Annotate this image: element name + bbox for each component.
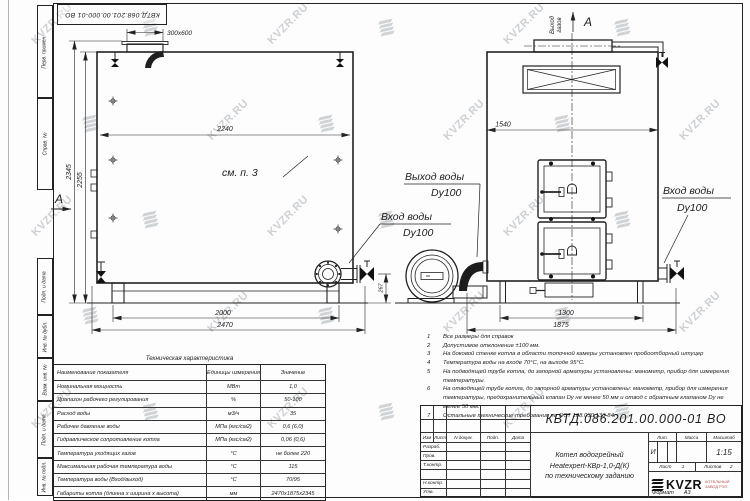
anchor-symbols	[109, 97, 343, 234]
tech-table-body: Номинальная мощность МВт 1,0 Диапазон ра…	[54, 380, 325, 500]
stamp-podp-data-2: Подп. и дата	[37, 401, 53, 458]
fan-outlet-elbow	[459, 262, 483, 291]
water-inlet-left-label: Вход воды	[381, 211, 432, 223]
side-width-dim: 2240	[216, 126, 233, 133]
note-item: 5 На подводящей трубе котла, до запорной…	[427, 368, 739, 385]
tech-table-row: Расход воды м3/ч 35	[54, 407, 325, 420]
side-height-dim: 2345	[66, 164, 73, 181]
tech-table-header: Наименование показателя Единицы измерени…	[54, 365, 325, 380]
furnace-door-lower	[538, 222, 612, 280]
water-inlet-right-label: Вход воды	[663, 185, 714, 197]
top-doc-number-box: КВТД.068.201.00.000-01 ВО	[57, 4, 167, 25]
lit-cells: И	[649, 442, 677, 463]
view-a-label: А	[583, 15, 592, 29]
inlet-valve	[341, 261, 374, 283]
signature-row	[421, 470, 531, 479]
note-item: 4 Температура воды на входе 70°С, на вых…	[427, 359, 739, 368]
signature-row: Утв.	[421, 489, 531, 498]
tech-table-row: Температура воды (Вход/выход) °С 70/95	[54, 473, 325, 486]
boiler-front-view	[487, 12, 684, 303]
title-block: КВТД.086.201.00.000-01 ВО Изм Лист N док…	[420, 405, 742, 497]
pipe-height-dim: 267	[379, 282, 385, 293]
stamp-podp-data-1: Подп. и дата	[37, 258, 53, 315]
signature-row: Пров.	[421, 452, 531, 461]
tech-table-row: Максимальная рабочая температура воды °С…	[54, 460, 325, 473]
water-inlet-flange	[315, 261, 341, 287]
tech-table-title: Техническая характеристика	[53, 355, 326, 364]
stamp-vzam-inv: Взам. инв. №	[37, 358, 53, 401]
change-table-empty	[421, 406, 531, 433]
tech-table-row: Гидравлическое сопротивление котла МПа (…	[54, 433, 325, 446]
gas-outlet-label-2: газов	[557, 17, 563, 32]
signature-row: Разраб.	[421, 443, 531, 452]
stamp-inv-podl: Инв. № подл.	[37, 458, 53, 496]
water-inlet-right-dn: Dy100	[677, 202, 708, 214]
lit-mass-scale-header: Лит. Масса Масштаб	[649, 433, 741, 442]
explosion-valve-elbow	[145, 51, 164, 68]
water-outlet-dn: Dy100	[431, 187, 462, 199]
document-number: КВТД.086.201.00.000-01 ВО	[531, 406, 741, 433]
signature-row: Т.контр.	[421, 461, 531, 470]
side-base-dim: 2000	[214, 310, 231, 317]
section-a-label: А	[54, 192, 63, 206]
tech-table-row: Температура уходящих газов °С не более 2…	[54, 446, 325, 459]
side-height-dim2: 2255	[77, 172, 84, 189]
wall-brackets	[91, 170, 97, 238]
tech-table-row: Габариты котла (длинна х ширина х высота…	[54, 486, 325, 499]
kvzr-logo-caption: КОТЕЛЬНЫЙ ЗАВОД РЭП	[705, 480, 738, 489]
roof-valve-right	[336, 52, 344, 67]
tech-table-row: Диапазон рабочего регулирования % 50-100	[54, 393, 325, 406]
signature-rows: Разраб. Пров. Т.контр.	[421, 443, 531, 498]
product-name: Котел водогрейный Heatexpert-КВр-1,0-Д(К…	[531, 433, 649, 498]
hatch-dim-label: 300x600	[167, 30, 192, 37]
water-inlet-left-dn: Dy100	[403, 227, 434, 239]
sheet-counter: Лист1 Листов2	[649, 463, 741, 472]
tech-table-row: Номинальная мощность МВт 1,0	[54, 380, 325, 393]
tech-table-row: Рабочее давление воды МПа (кгс/см2) 0,6 …	[54, 420, 325, 433]
tech-table: Техническая характеристика Наименование …	[53, 355, 326, 501]
note-item: 1 Все размеры для справок	[427, 333, 739, 342]
furnace-door-upper	[538, 160, 612, 218]
roof-valve-left	[111, 52, 119, 67]
gas-outlet-label-1: Выход	[550, 15, 556, 34]
water-outlet-label: Выход воды	[405, 171, 464, 183]
front-width-dim: 1540	[495, 122, 511, 129]
side-view-dimensions	[51, 29, 391, 334]
format-label: ФорматА3	[652, 490, 691, 496]
note-item: 3 На боковой стенке котла в области топо…	[427, 350, 739, 359]
stamp-inv-dubl: Инв. № дубл.	[37, 315, 53, 358]
change-table-header: Изм Лист N докум. Подп. Дата	[421, 433, 531, 443]
stamp-sprav-no: Справ. №	[37, 98, 53, 190]
scale-value: 1:15	[707, 442, 741, 463]
note-item: 2 Допустимое отклонение ±100 мм.	[427, 342, 739, 351]
stamp-perv-primen: Перв. примен.	[37, 5, 53, 98]
drawing-sheet: KVZR.RUKVZR.RUKVZR.RUKVZR.RUKVZR.RUKVZR.…	[0, 0, 750, 500]
mass-cell	[677, 442, 707, 463]
front-base-dim: 1300	[558, 310, 574, 317]
side-length-dim: 2470	[216, 322, 233, 329]
see-note-label: см. п. 3	[222, 167, 258, 179]
return-valve	[658, 261, 684, 283]
front-overall-dim: 1875	[553, 322, 569, 329]
signature-row: Н.контр.	[421, 480, 531, 489]
